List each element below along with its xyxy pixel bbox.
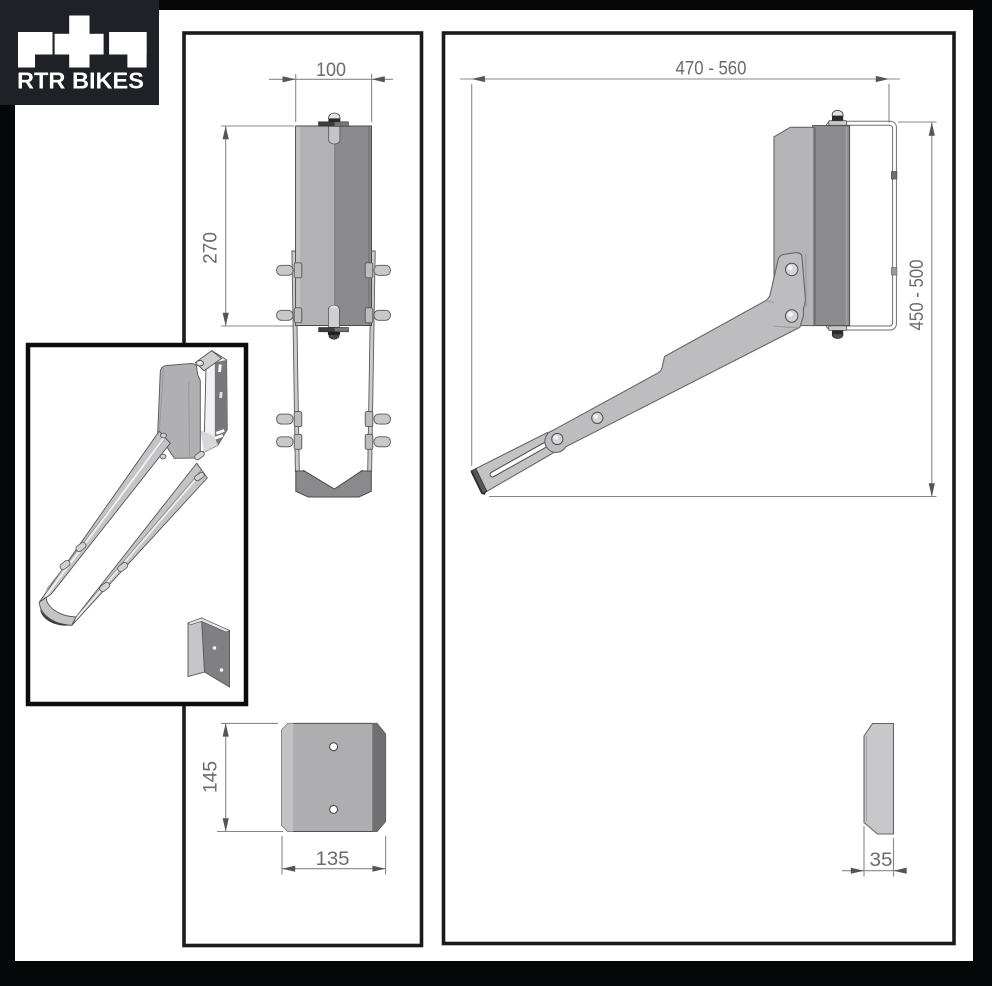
svg-text:RTR BIKES: RTR BIKES (17, 68, 144, 94)
svg-text:270: 270 (200, 232, 222, 264)
svg-text:35: 35 (870, 849, 893, 871)
svg-text:100: 100 (316, 59, 346, 81)
svg-text:450 - 500: 450 - 500 (906, 259, 928, 330)
svg-text:470 - 560: 470 - 560 (676, 58, 747, 80)
svg-text:135: 135 (316, 848, 350, 870)
svg-text:145: 145 (200, 761, 222, 793)
